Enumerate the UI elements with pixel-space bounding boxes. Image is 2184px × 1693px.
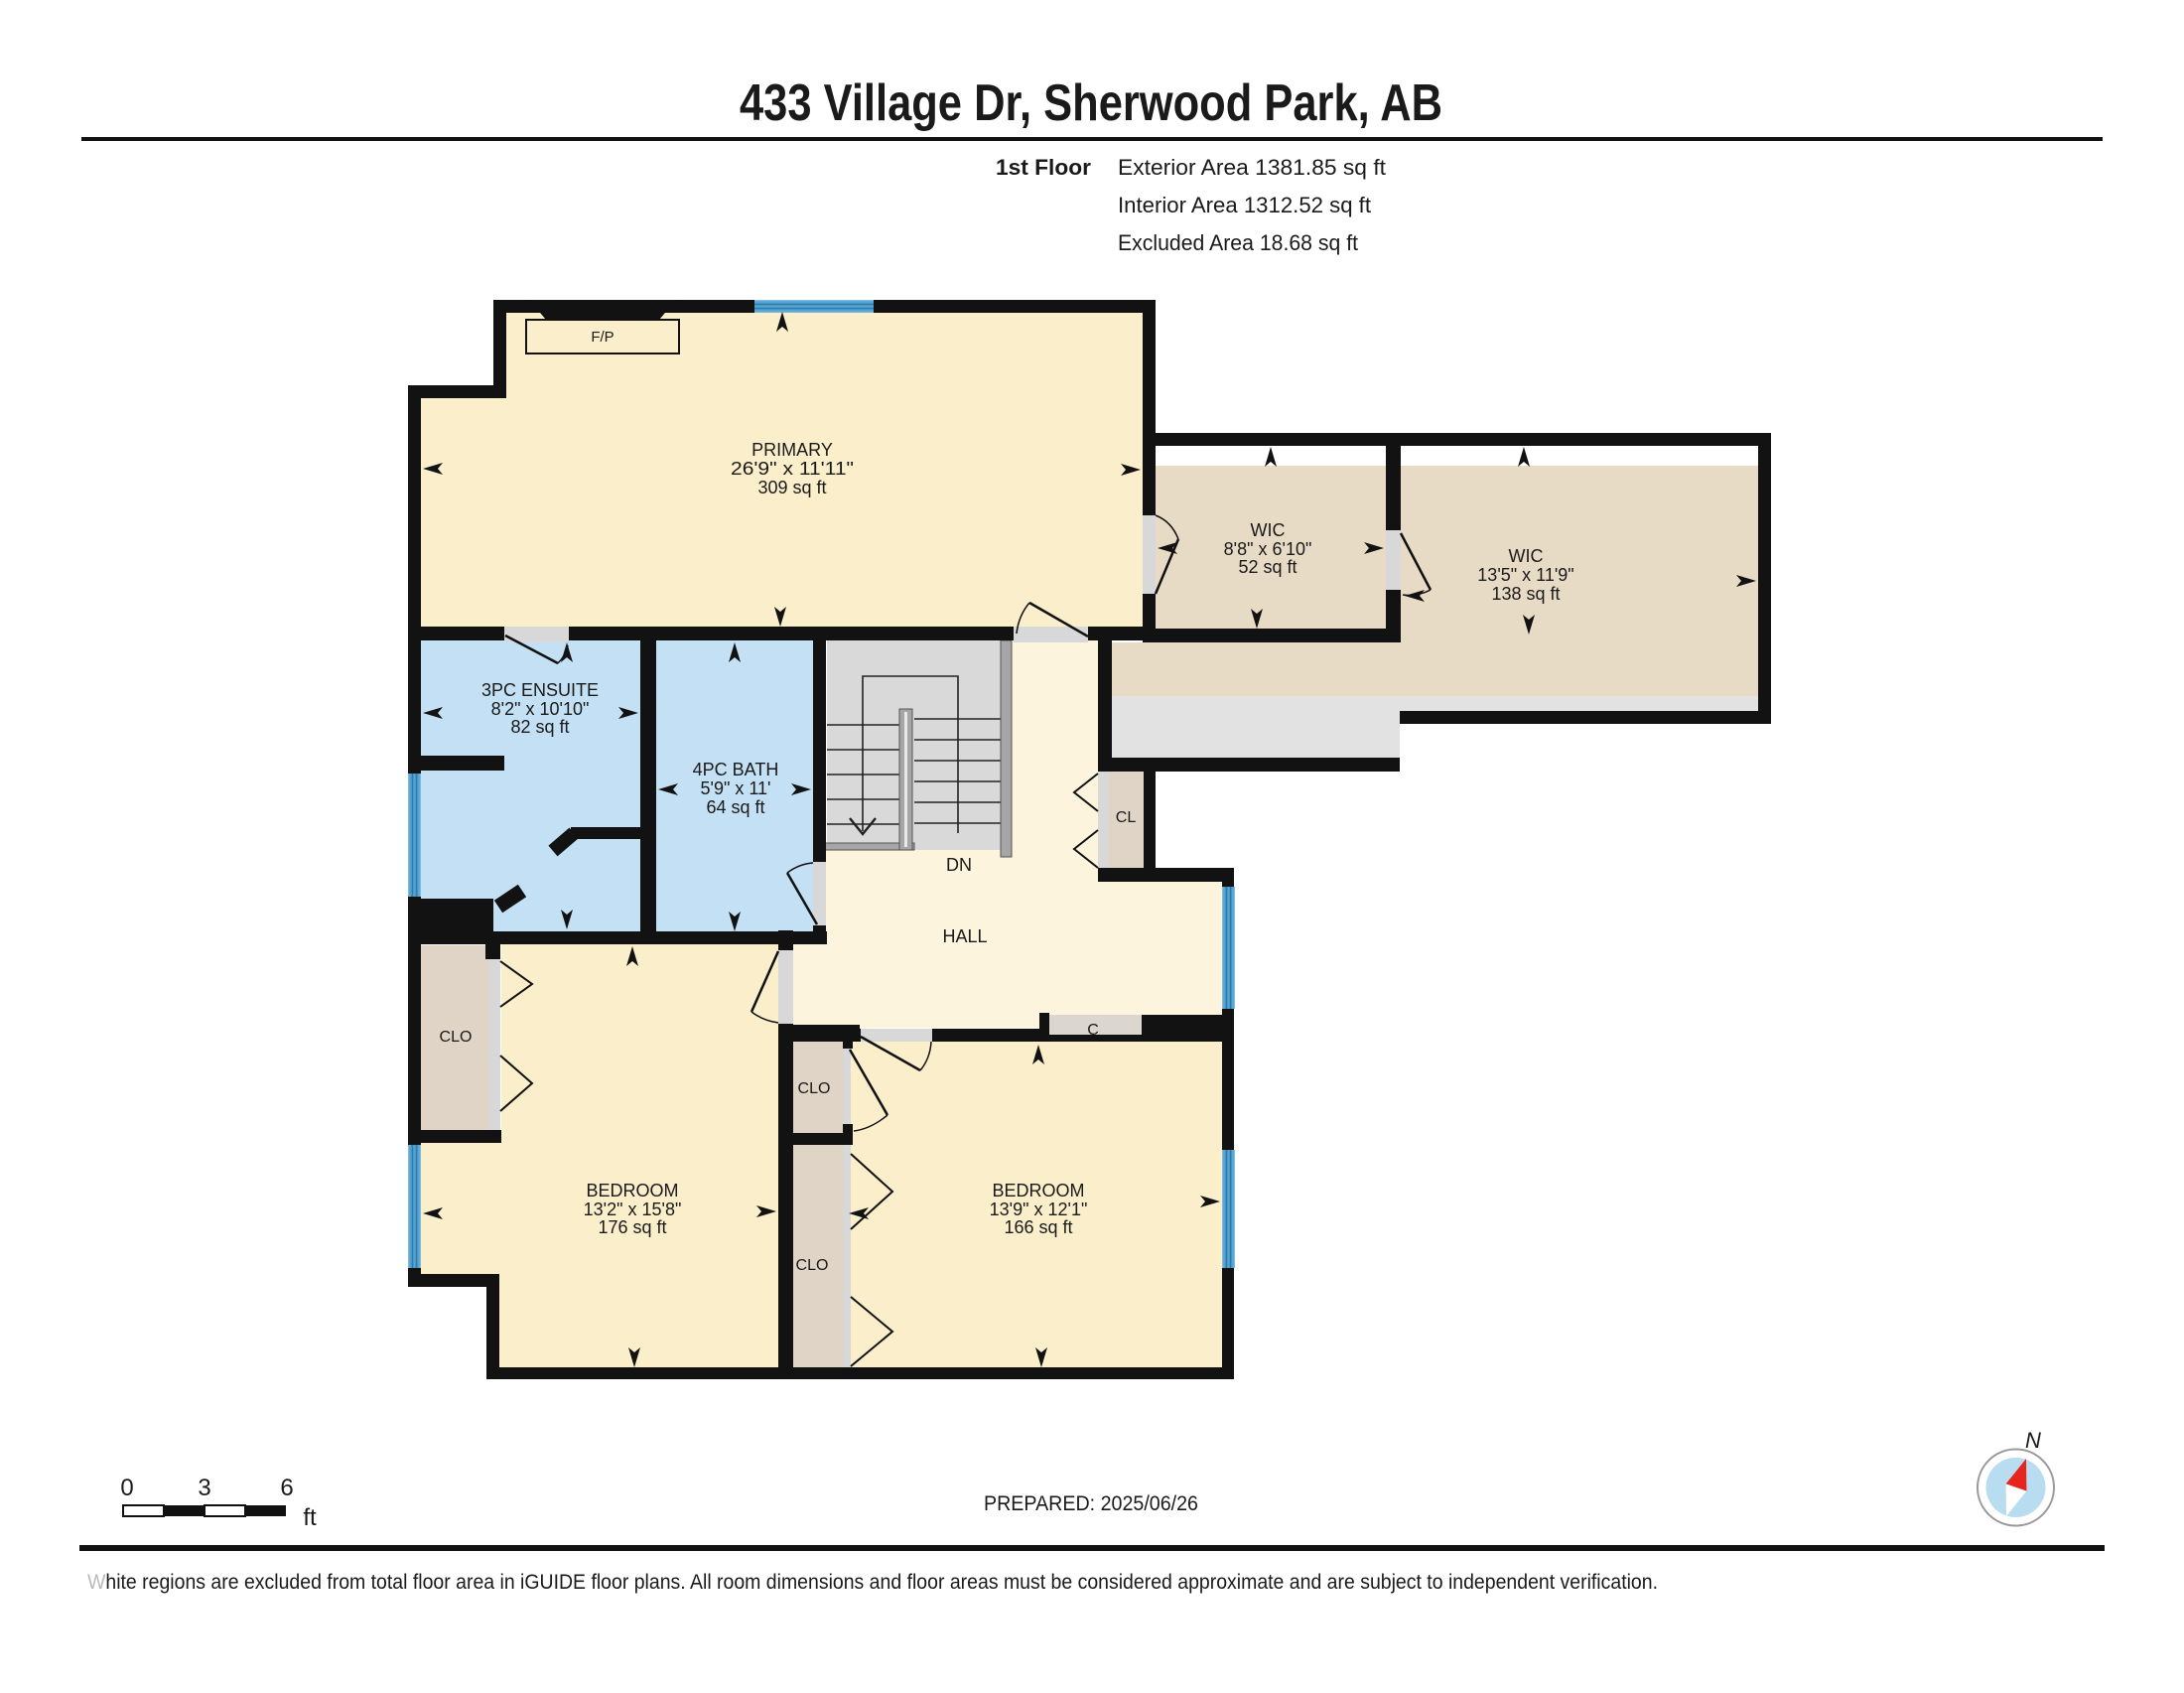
svg-text:176 sq ft: 176 sq ft: [598, 1217, 666, 1237]
svg-text:138 sq ft: 138 sq ft: [1491, 584, 1560, 604]
svg-text:82 sq ft: 82 sq ft: [510, 717, 569, 737]
svg-text:DN: DN: [946, 855, 972, 875]
svg-text:White regions are excluded fro: White regions are excluded from total fl…: [87, 1571, 1658, 1594]
svg-text:N: N: [2025, 1428, 2041, 1453]
svg-text:433 Village Dr, Sherwood Park,: 433 Village Dr, Sherwood Park, AB: [740, 74, 1442, 132]
svg-text:BEDROOM: BEDROOM: [586, 1181, 678, 1200]
svg-text:CLO: CLO: [798, 1080, 831, 1097]
svg-text:CLO: CLO: [440, 1029, 473, 1046]
svg-text:13'2" x 15'8": 13'2" x 15'8": [584, 1199, 682, 1219]
svg-text:13'9" x 12'1": 13'9" x 12'1": [990, 1199, 1088, 1219]
svg-text:1st Floor: 1st Floor: [996, 155, 1091, 180]
svg-text:WIC: WIC: [1251, 520, 1286, 540]
svg-text:4PC BATH: 4PC BATH: [693, 760, 779, 779]
svg-text:CL: CL: [1116, 809, 1137, 826]
svg-text:0: 0: [120, 1475, 133, 1501]
svg-text:3: 3: [198, 1475, 210, 1501]
svg-text:3PC ENSUITE: 3PC ENSUITE: [481, 680, 599, 700]
svg-text:C: C: [1087, 1022, 1099, 1039]
svg-text:Excluded Area 18.68 sq ft: Excluded Area 18.68 sq ft: [1118, 230, 1358, 255]
svg-text:26'9" x 11'11": 26'9" x 11'11": [731, 459, 854, 479]
svg-text:8'8" x 6'10": 8'8" x 6'10": [1224, 539, 1312, 559]
svg-text:HALL: HALL: [942, 926, 987, 946]
svg-text:WIC: WIC: [1509, 546, 1544, 566]
svg-text:Interior Area 1312.52 sq ft: Interior Area 1312.52 sq ft: [1118, 193, 1371, 217]
svg-text:Exterior Area 1381.85 sq ft: Exterior Area 1381.85 sq ft: [1118, 155, 1386, 180]
svg-text:PRIMARY: PRIMARY: [751, 440, 833, 460]
svg-text:ft: ft: [303, 1504, 317, 1531]
svg-text:13'5" x 11'9": 13'5" x 11'9": [1477, 565, 1573, 585]
svg-text:64 sq ft: 64 sq ft: [706, 797, 764, 817]
svg-text:F/P: F/P: [591, 329, 614, 346]
svg-text:52 sq ft: 52 sq ft: [1238, 557, 1297, 577]
svg-text:6: 6: [280, 1475, 293, 1501]
svg-text:166 sq ft: 166 sq ft: [1004, 1217, 1072, 1237]
svg-text:8'2" x 10'10": 8'2" x 10'10": [491, 699, 590, 719]
svg-text:PREPARED: 2025/06/26: PREPARED: 2025/06/26: [984, 1492, 1198, 1515]
svg-text:BEDROOM: BEDROOM: [992, 1181, 1084, 1200]
svg-text:CLO: CLO: [796, 1257, 829, 1274]
svg-text:309 sq ft: 309 sq ft: [757, 478, 826, 497]
svg-text:5'9" x 11': 5'9" x 11': [701, 778, 771, 798]
